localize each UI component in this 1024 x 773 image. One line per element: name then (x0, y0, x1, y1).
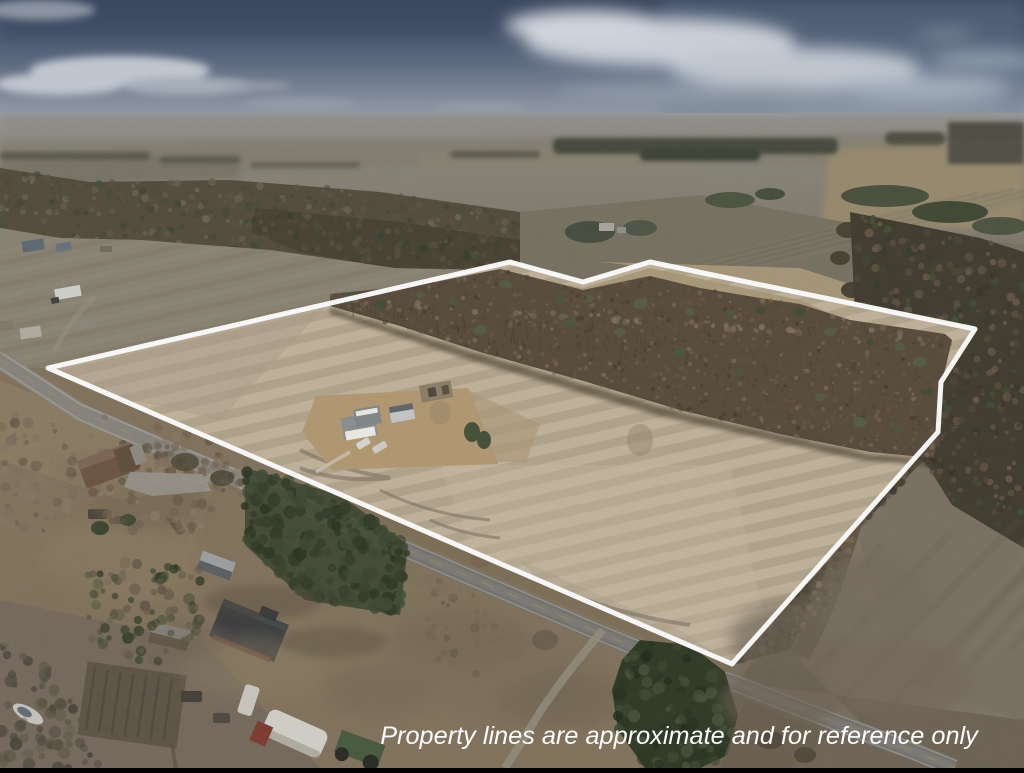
svg-text:Property lines are approximate: Property lines are approximate and for r… (380, 722, 979, 750)
